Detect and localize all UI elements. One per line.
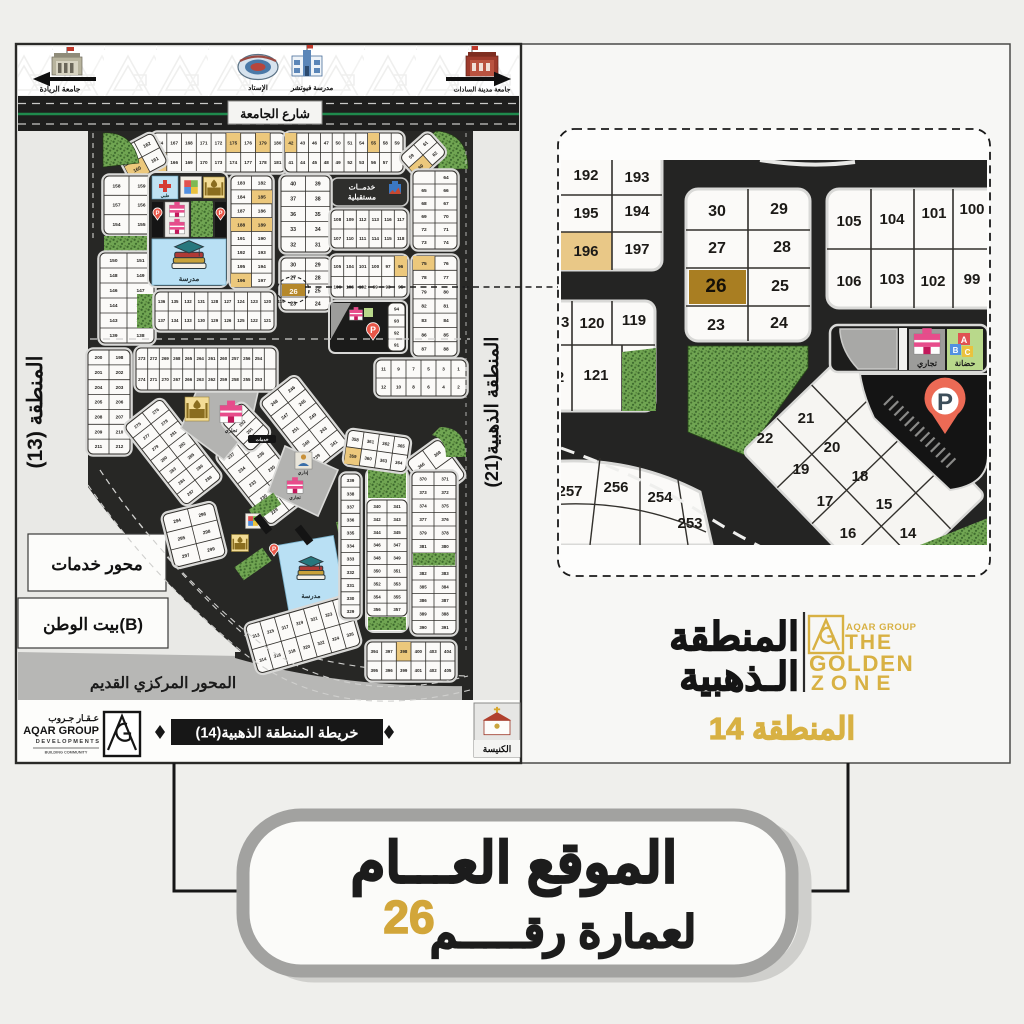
svg-text:69: 69 xyxy=(421,214,427,220)
svg-text:256: 256 xyxy=(603,479,628,496)
svg-text:18: 18 xyxy=(852,468,869,485)
svg-text:376: 376 xyxy=(441,517,449,522)
svg-text:97: 97 xyxy=(385,264,391,269)
svg-text:المحور المركزي القديم: المحور المركزي القديم xyxy=(90,675,236,693)
svg-text:334: 334 xyxy=(347,544,355,549)
svg-text:204: 204 xyxy=(95,385,103,390)
svg-text:11: 11 xyxy=(381,367,386,372)
svg-text:107: 107 xyxy=(333,236,341,241)
svg-text:131: 131 xyxy=(198,299,206,304)
svg-text:342: 342 xyxy=(373,517,381,522)
svg-text:172: 172 xyxy=(215,140,223,145)
svg-text:154: 154 xyxy=(112,222,120,228)
svg-text:209: 209 xyxy=(95,429,103,434)
svg-text:118: 118 xyxy=(397,236,405,241)
svg-text:111: 111 xyxy=(359,236,367,241)
svg-text:189: 189 xyxy=(258,222,266,228)
svg-text:104: 104 xyxy=(879,211,905,228)
svg-text:340: 340 xyxy=(373,504,381,509)
svg-text:121: 121 xyxy=(264,318,272,323)
svg-text:169: 169 xyxy=(185,160,193,165)
svg-text:254: 254 xyxy=(255,356,263,361)
svg-text:25: 25 xyxy=(771,278,789,295)
svg-text:1: 1 xyxy=(457,367,460,372)
svg-text:197: 197 xyxy=(624,241,649,258)
svg-text:157: 157 xyxy=(112,203,120,209)
svg-text:270: 270 xyxy=(162,377,170,382)
svg-text:41: 41 xyxy=(288,160,294,165)
svg-text:123: 123 xyxy=(251,299,259,304)
svg-text:72: 72 xyxy=(421,227,427,233)
svg-text:398: 398 xyxy=(400,649,408,654)
svg-text:212: 212 xyxy=(116,444,124,449)
svg-text:353: 353 xyxy=(393,581,401,586)
svg-text:108: 108 xyxy=(333,217,341,222)
svg-text:الإستاد: الإستاد xyxy=(248,83,268,92)
svg-text:‏بيت الوطن(B): ‏بيت الوطن(B) xyxy=(43,615,143,635)
svg-text:23: 23 xyxy=(707,317,725,334)
svg-text:177: 177 xyxy=(244,160,252,165)
svg-text:7: 7 xyxy=(412,367,415,372)
svg-text:101: 101 xyxy=(359,264,367,269)
svg-text:BUILDING COMMUNITY: BUILDING COMMUNITY xyxy=(45,751,88,755)
svg-text:191: 191 xyxy=(237,236,245,242)
svg-text:382: 382 xyxy=(419,571,427,576)
svg-text:266: 266 xyxy=(185,377,193,382)
svg-text:P: P xyxy=(272,547,276,553)
svg-text:193: 193 xyxy=(258,250,266,256)
svg-text:331: 331 xyxy=(347,583,355,588)
svg-text:39: 39 xyxy=(315,182,321,188)
svg-text:70: 70 xyxy=(443,214,449,220)
svg-text:178: 178 xyxy=(259,160,267,165)
svg-text:مدرسة فيوتشر: مدرسة فيوتشر xyxy=(290,85,334,92)
svg-text:55: 55 xyxy=(371,140,377,145)
svg-text:47: 47 xyxy=(324,140,330,145)
svg-text:79: 79 xyxy=(421,289,427,295)
svg-text:96: 96 xyxy=(398,264,404,269)
svg-text:192: 192 xyxy=(237,250,245,256)
svg-text:351: 351 xyxy=(393,569,401,574)
svg-text:14: 14 xyxy=(900,525,917,542)
svg-text:350: 350 xyxy=(373,569,381,574)
svg-text:32: 32 xyxy=(290,242,296,248)
svg-text:124: 124 xyxy=(237,299,245,304)
svg-text:269: 269 xyxy=(162,356,170,361)
svg-text:339: 339 xyxy=(347,478,355,483)
svg-text:381: 381 xyxy=(419,544,427,549)
svg-text:51: 51 xyxy=(347,140,353,145)
svg-text:P: P xyxy=(937,389,953,416)
svg-text:35: 35 xyxy=(315,212,321,218)
svg-text:64: 64 xyxy=(443,175,449,181)
svg-text:268: 268 xyxy=(173,356,181,361)
svg-text:6: 6 xyxy=(427,385,430,390)
svg-text:182: 182 xyxy=(258,181,266,187)
svg-text:36: 36 xyxy=(290,212,296,218)
svg-text:354: 354 xyxy=(373,594,381,599)
svg-text:49: 49 xyxy=(336,160,342,165)
svg-text:27: 27 xyxy=(290,275,296,281)
svg-text:148: 148 xyxy=(109,273,117,279)
svg-text:149: 149 xyxy=(136,273,144,279)
svg-text:386: 386 xyxy=(419,598,427,603)
svg-text:81: 81 xyxy=(443,304,449,310)
svg-text:263: 263 xyxy=(197,377,205,382)
svg-text:132: 132 xyxy=(184,299,192,304)
svg-text:395: 395 xyxy=(371,668,379,673)
svg-text:مستقبلية: مستقبلية xyxy=(348,193,376,202)
svg-text:119: 119 xyxy=(622,312,646,329)
svg-text:388: 388 xyxy=(441,611,449,616)
svg-text:387: 387 xyxy=(441,598,449,603)
svg-text:265: 265 xyxy=(185,356,193,361)
svg-text:147: 147 xyxy=(136,288,144,294)
svg-text:357: 357 xyxy=(393,607,401,612)
svg-text:156: 156 xyxy=(137,203,145,209)
svg-text:37: 37 xyxy=(290,197,296,203)
svg-text:110: 110 xyxy=(346,236,354,241)
svg-text:391: 391 xyxy=(441,625,449,630)
svg-text:65: 65 xyxy=(421,188,427,194)
svg-text:389: 389 xyxy=(419,611,427,616)
svg-text:‏خريطة المنطقة الذهبية(14): ‏خريطة المنطقة الذهبية(14) xyxy=(196,726,359,742)
svg-text:193: 193 xyxy=(624,169,649,186)
svg-text:44: 44 xyxy=(300,160,306,165)
svg-text:100: 100 xyxy=(959,201,984,218)
svg-text:400: 400 xyxy=(415,649,423,654)
svg-text:176: 176 xyxy=(244,140,252,145)
svg-text:22: 22 xyxy=(757,430,774,447)
svg-text:346: 346 xyxy=(373,543,381,548)
svg-text:130: 130 xyxy=(198,318,206,323)
svg-text:168: 168 xyxy=(185,140,193,145)
svg-text:139: 139 xyxy=(109,333,117,339)
svg-text:83: 83 xyxy=(421,318,427,324)
svg-text:16: 16 xyxy=(840,525,857,542)
svg-text:109: 109 xyxy=(346,217,354,222)
svg-text:188: 188 xyxy=(237,222,245,228)
svg-text:171: 171 xyxy=(200,140,208,145)
svg-text:194: 194 xyxy=(258,264,266,270)
svg-text:75: 75 xyxy=(421,261,427,267)
svg-text:121: 121 xyxy=(583,367,608,384)
svg-text:78: 78 xyxy=(421,275,427,281)
svg-text:332: 332 xyxy=(347,570,355,575)
svg-text:9: 9 xyxy=(397,367,400,372)
svg-text:38: 38 xyxy=(315,197,321,203)
svg-text:167: 167 xyxy=(170,140,178,145)
svg-text:201: 201 xyxy=(95,370,103,375)
svg-text:خدمات: خدمات xyxy=(256,437,269,442)
svg-text:196: 196 xyxy=(237,278,245,284)
svg-text:26: 26 xyxy=(705,276,726,297)
svg-text:166: 166 xyxy=(170,160,178,165)
svg-text:17: 17 xyxy=(817,493,834,510)
svg-text:170: 170 xyxy=(200,160,208,165)
svg-text:257: 257 xyxy=(557,483,582,500)
svg-text:347: 347 xyxy=(393,543,401,548)
svg-text:187: 187 xyxy=(237,208,245,214)
svg-text:B: B xyxy=(953,346,959,355)
svg-text:34: 34 xyxy=(315,227,321,233)
svg-text:خدمــات: خدمــات xyxy=(349,183,376,192)
svg-text:120: 120 xyxy=(264,299,272,304)
svg-text:20: 20 xyxy=(824,439,841,456)
svg-text:352: 352 xyxy=(373,581,381,586)
svg-text:397: 397 xyxy=(385,649,393,654)
svg-text:P: P xyxy=(155,211,159,217)
svg-text:338: 338 xyxy=(347,491,355,496)
svg-text:330: 330 xyxy=(347,596,355,601)
svg-text:101: 101 xyxy=(921,205,946,222)
svg-text:348: 348 xyxy=(373,556,381,561)
svg-text:385: 385 xyxy=(419,584,427,589)
svg-text:86: 86 xyxy=(421,332,427,338)
svg-text:375: 375 xyxy=(441,503,449,508)
svg-text:48: 48 xyxy=(324,160,330,165)
svg-text:184: 184 xyxy=(237,195,245,201)
svg-text:لعمارة رقـــــم: لعمارة رقـــــم xyxy=(430,908,696,959)
svg-text:26: 26 xyxy=(289,287,297,296)
svg-text:45: 45 xyxy=(312,160,318,165)
svg-text:94: 94 xyxy=(394,307,400,312)
svg-text:254: 254 xyxy=(647,489,673,506)
svg-text:100: 100 xyxy=(371,264,379,269)
svg-text:43: 43 xyxy=(300,140,306,145)
svg-text:92: 92 xyxy=(394,331,400,336)
svg-text:77: 77 xyxy=(443,275,449,281)
svg-text:158: 158 xyxy=(112,183,120,189)
svg-text:19: 19 xyxy=(793,461,810,478)
svg-text:50: 50 xyxy=(336,140,342,145)
svg-text:جامعة مدينة السادات: جامعة مدينة السادات xyxy=(453,86,510,94)
svg-text:57: 57 xyxy=(383,160,389,165)
svg-text:71: 71 xyxy=(443,227,449,233)
svg-text:59: 59 xyxy=(395,140,401,145)
svg-text:200: 200 xyxy=(95,355,103,360)
svg-text:394: 394 xyxy=(371,649,379,654)
svg-text:401: 401 xyxy=(415,668,423,673)
svg-text:33: 33 xyxy=(290,227,296,233)
svg-text:‏المنطقة (13): ‏المنطقة (13) xyxy=(24,355,47,468)
svg-text:3: 3 xyxy=(442,367,445,372)
svg-text:66: 66 xyxy=(443,188,449,194)
svg-text:29: 29 xyxy=(770,201,788,218)
svg-text:404: 404 xyxy=(444,649,452,654)
svg-text:تجاري: تجاري xyxy=(917,359,938,369)
svg-text:373: 373 xyxy=(419,490,427,495)
svg-text:135: 135 xyxy=(171,299,179,304)
svg-text:58: 58 xyxy=(383,140,389,145)
svg-text:137: 137 xyxy=(158,318,166,323)
svg-text:‏المنطقة الذهبية(21): ‏المنطقة الذهبية(21) xyxy=(481,337,502,488)
svg-text:253: 253 xyxy=(255,377,263,382)
svg-text:93: 93 xyxy=(394,319,400,324)
svg-text:مدرسة: مدرسة xyxy=(179,276,200,283)
svg-text:27: 27 xyxy=(708,240,726,257)
svg-text:150: 150 xyxy=(109,258,117,264)
svg-text:274: 274 xyxy=(138,377,146,382)
svg-text:183: 183 xyxy=(237,181,245,187)
svg-text:119: 119 xyxy=(277,299,285,304)
svg-text:C: C xyxy=(965,348,971,357)
svg-text:68: 68 xyxy=(421,201,427,207)
svg-text:202: 202 xyxy=(116,370,124,375)
svg-text:AQAR GROUP: AQAR GROUP xyxy=(23,725,99,737)
svg-text:126: 126 xyxy=(224,318,232,323)
svg-text:211: 211 xyxy=(95,444,103,449)
svg-text:333: 333 xyxy=(347,557,355,562)
svg-text:116: 116 xyxy=(384,217,392,222)
svg-text:271: 271 xyxy=(150,377,158,382)
svg-text:85: 85 xyxy=(443,332,449,338)
svg-text:84: 84 xyxy=(443,318,449,324)
svg-text:10: 10 xyxy=(396,385,402,390)
svg-text:117: 117 xyxy=(397,217,405,222)
svg-text:335: 335 xyxy=(347,531,355,536)
svg-text:257: 257 xyxy=(232,356,240,361)
svg-text:2: 2 xyxy=(457,385,460,390)
svg-text:337: 337 xyxy=(347,504,355,509)
svg-text:الموقع العـــام: الموقع العـــام xyxy=(351,831,678,897)
svg-text:206: 206 xyxy=(116,400,124,405)
svg-text:74: 74 xyxy=(443,240,449,246)
svg-text:28: 28 xyxy=(773,239,791,256)
svg-text:حضانة: حضانة xyxy=(955,359,976,368)
svg-text:349: 349 xyxy=(393,556,401,561)
svg-text:105: 105 xyxy=(836,213,861,230)
svg-text:115: 115 xyxy=(384,236,392,241)
svg-text:99: 99 xyxy=(964,271,981,288)
svg-text:112: 112 xyxy=(359,217,367,222)
svg-text:73: 73 xyxy=(421,240,427,246)
svg-text:194: 194 xyxy=(624,203,650,220)
svg-text:67: 67 xyxy=(443,201,449,207)
svg-text:80: 80 xyxy=(443,289,449,295)
svg-text:4: 4 xyxy=(442,385,445,390)
svg-text:‏المنطقة 14: ‏المنطقة 14 xyxy=(709,711,855,746)
svg-text:345: 345 xyxy=(393,530,401,535)
svg-text:102: 102 xyxy=(920,273,945,290)
svg-text:5: 5 xyxy=(427,367,430,372)
svg-text:53: 53 xyxy=(359,160,365,165)
svg-text:113: 113 xyxy=(372,217,380,222)
svg-text:258: 258 xyxy=(232,377,240,382)
svg-text:عـقـار جـروب: عـقـار جـروب xyxy=(48,713,99,724)
svg-text:399: 399 xyxy=(400,668,408,673)
svg-text:تجاري: تجاري xyxy=(225,428,238,434)
svg-text:122: 122 xyxy=(251,318,259,323)
svg-text:174: 174 xyxy=(229,160,237,165)
svg-text:383: 383 xyxy=(441,571,449,576)
svg-text:192: 192 xyxy=(573,167,598,184)
svg-text:87: 87 xyxy=(421,347,427,353)
svg-text:133: 133 xyxy=(184,318,192,323)
svg-text:155: 155 xyxy=(137,222,145,228)
svg-text:29: 29 xyxy=(315,262,321,268)
svg-text:343: 343 xyxy=(393,517,401,522)
svg-text:272: 272 xyxy=(150,356,158,361)
svg-text:128: 128 xyxy=(211,299,219,304)
svg-text:380: 380 xyxy=(441,544,449,549)
svg-text:25: 25 xyxy=(315,288,321,294)
svg-text:151: 151 xyxy=(136,258,144,264)
svg-text:15: 15 xyxy=(876,496,893,513)
svg-text:208: 208 xyxy=(95,415,103,420)
svg-text:396: 396 xyxy=(385,668,393,673)
svg-text:56: 56 xyxy=(371,160,377,165)
svg-text:114: 114 xyxy=(372,236,380,241)
svg-text:شارع الجامعة: شارع الجامعة xyxy=(240,107,310,122)
svg-text:371: 371 xyxy=(441,476,449,481)
svg-text:159: 159 xyxy=(137,183,145,189)
svg-text:P: P xyxy=(218,211,222,217)
svg-text:30: 30 xyxy=(708,203,726,220)
svg-text:144: 144 xyxy=(109,303,117,309)
svg-text:267: 267 xyxy=(173,377,181,382)
svg-text:190: 190 xyxy=(258,236,266,242)
svg-text:21: 21 xyxy=(798,410,815,427)
svg-text:8: 8 xyxy=(412,385,415,390)
svg-text:91: 91 xyxy=(394,343,400,348)
svg-text:260: 260 xyxy=(220,356,228,361)
svg-text:180: 180 xyxy=(274,140,282,145)
svg-text:127: 127 xyxy=(224,299,232,304)
svg-text:54: 54 xyxy=(359,140,365,145)
svg-text:136: 136 xyxy=(158,299,166,304)
svg-text:210: 210 xyxy=(116,429,124,434)
svg-text:76: 76 xyxy=(443,261,449,267)
svg-text:146: 146 xyxy=(109,288,117,294)
svg-text:196: 196 xyxy=(573,243,598,260)
svg-text:390: 390 xyxy=(419,625,427,630)
svg-text:195: 195 xyxy=(573,205,598,222)
svg-text:88: 88 xyxy=(443,347,449,353)
svg-text:12: 12 xyxy=(381,385,387,390)
svg-text:143: 143 xyxy=(109,318,117,324)
svg-text:105: 105 xyxy=(333,264,341,269)
svg-text:106: 106 xyxy=(836,273,861,290)
svg-text:379: 379 xyxy=(419,530,427,535)
svg-text:179: 179 xyxy=(259,140,267,145)
svg-text:52: 52 xyxy=(347,160,353,165)
svg-text:28: 28 xyxy=(315,275,321,281)
svg-text:384: 384 xyxy=(441,584,449,589)
svg-text:جامعة الريادة: جامعة الريادة xyxy=(40,85,81,95)
svg-text:46: 46 xyxy=(312,140,318,145)
svg-text:42: 42 xyxy=(288,140,294,145)
svg-text:355: 355 xyxy=(393,594,401,599)
svg-text:محور خدمات: محور خدمات xyxy=(51,555,143,575)
svg-text:D E V E L O P M E N T S: D E V E L O P M E N T S xyxy=(36,739,99,745)
svg-text:259: 259 xyxy=(220,377,228,382)
svg-text:125: 125 xyxy=(237,318,245,323)
svg-text:104: 104 xyxy=(346,264,354,269)
svg-text:A: A xyxy=(961,335,968,345)
svg-text:26: 26 xyxy=(383,891,434,943)
svg-text:374: 374 xyxy=(419,503,427,508)
svg-text:103: 103 xyxy=(879,271,904,288)
svg-text:الـذهبية: الـذهبية xyxy=(679,656,799,699)
svg-text:195: 195 xyxy=(237,264,245,270)
svg-text:24: 24 xyxy=(315,301,321,307)
svg-text:المنطقة: المنطقة xyxy=(669,616,799,659)
svg-text:197: 197 xyxy=(258,278,266,284)
svg-text:262: 262 xyxy=(208,377,216,382)
svg-text:181: 181 xyxy=(274,160,282,165)
svg-text:24: 24 xyxy=(770,315,788,332)
